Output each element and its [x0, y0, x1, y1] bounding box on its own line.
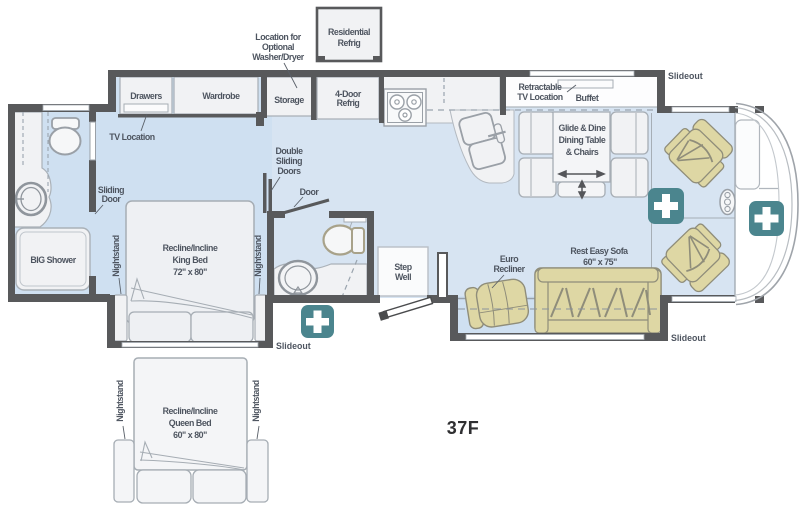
svg-text:Buffet: Buffet [576, 93, 599, 103]
svg-text:Rest Easy Sofa: Rest Easy Sofa [570, 246, 628, 256]
svg-text:Location for: Location for [255, 32, 301, 42]
svg-text:& Chairs: & Chairs [566, 147, 599, 157]
svg-text:Doors: Doors [277, 166, 301, 176]
svg-text:Refrig: Refrig [338, 38, 361, 48]
svg-text:King Bed: King Bed [172, 255, 207, 265]
svg-text:TV Location: TV Location [517, 92, 562, 102]
svg-text:Drawers: Drawers [130, 91, 162, 101]
svg-text:Euro: Euro [500, 254, 519, 264]
svg-text:Nightstand: Nightstand [251, 380, 261, 422]
svg-text:Door: Door [300, 187, 320, 197]
svg-text:Well: Well [395, 272, 411, 282]
svg-text:Dining Table: Dining Table [559, 135, 606, 145]
svg-text:Recline/Incline: Recline/Incline [163, 243, 218, 253]
svg-text:Door: Door [102, 194, 122, 204]
svg-text:Slideout: Slideout [671, 333, 706, 343]
svg-text:Optional: Optional [262, 42, 294, 52]
svg-text:Retractable: Retractable [519, 82, 563, 92]
svg-text:Nightstand: Nightstand [115, 380, 125, 422]
svg-text:Slideout: Slideout [668, 71, 703, 81]
svg-text:Residential: Residential [328, 27, 370, 37]
svg-text:72" x 80": 72" x 80" [173, 267, 207, 277]
svg-text:Sliding: Sliding [276, 156, 302, 166]
svg-text:Slideout: Slideout [276, 341, 311, 351]
svg-text:Nightstand: Nightstand [111, 235, 121, 277]
svg-text:Step: Step [394, 262, 412, 272]
svg-text:Nightstand: Nightstand [253, 235, 263, 277]
svg-text:Storage: Storage [274, 95, 304, 105]
svg-text:Glide & Dine: Glide & Dine [559, 123, 606, 133]
svg-text:37F: 37F [447, 418, 480, 438]
svg-text:Double: Double [275, 146, 303, 156]
svg-text:Recliner: Recliner [493, 264, 525, 274]
svg-text:BIG Shower: BIG Shower [30, 255, 76, 265]
svg-text:Washer/Dryer: Washer/Dryer [252, 52, 305, 62]
svg-text:Wardrobe: Wardrobe [202, 91, 240, 101]
svg-text:Recline/Incline: Recline/Incline [163, 406, 218, 416]
svg-text:60" x 75": 60" x 75" [583, 257, 617, 267]
svg-text:Refrig: Refrig [337, 98, 360, 108]
svg-text:TV Location: TV Location [109, 132, 154, 142]
svg-text:Queen Bed: Queen Bed [169, 418, 211, 428]
svg-text:60" x 80": 60" x 80" [173, 430, 207, 440]
